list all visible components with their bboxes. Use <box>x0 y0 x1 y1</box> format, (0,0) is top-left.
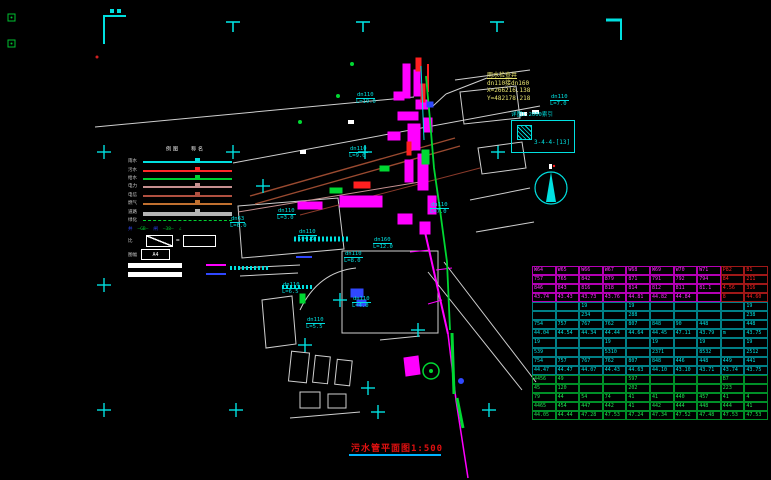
table-cell: 43.10 <box>674 366 698 375</box>
legend-item: 道路 <box>128 207 232 215</box>
table-cell: 44.47 <box>556 366 580 375</box>
pipe-label: dn110L=6.5 <box>282 282 301 295</box>
table-cell: 818 <box>603 284 627 293</box>
table-cell: 848 <box>650 357 674 366</box>
legend-item: 燃气 <box>128 199 232 207</box>
table-cell: 444 <box>674 402 698 411</box>
table-cell: 19 <box>626 302 650 311</box>
table-cell: 43.73 <box>579 293 603 302</box>
well-callout-pipe: dn110接dn160 <box>487 80 530 88</box>
table-cell: 792 <box>674 275 698 284</box>
table-cell: 8532 <box>697 348 721 357</box>
table-cell: 41 <box>721 393 745 402</box>
legend-item: 绿化 <box>128 216 232 224</box>
table-cell: 19 <box>744 302 768 311</box>
table-cell <box>650 311 674 320</box>
table-cell: 807 <box>626 357 650 366</box>
table-cell: W68 <box>626 266 650 275</box>
table-cell: 19 <box>650 338 674 347</box>
table-section: W64W65W66W67W68W69W70W71P82B175776584287… <box>532 266 768 302</box>
stray-red-dot <box>96 56 99 59</box>
table-cell: 288 <box>626 311 650 320</box>
legend-header-name: 名称 <box>190 146 204 152</box>
table-cell: 442 <box>650 402 674 411</box>
table-cell <box>603 311 627 320</box>
table-cell <box>579 338 603 347</box>
well-callout-x: X=266216.138 <box>487 87 530 95</box>
table-cell: 211 <box>744 275 768 284</box>
table-cell: 43.75 <box>744 366 768 375</box>
table-cell: 41 <box>626 402 650 411</box>
table-cell: 202 <box>626 384 650 393</box>
table-cell: 842 <box>579 275 603 284</box>
sewer-pipe-corridor <box>298 64 468 478</box>
table-cell: 539 <box>532 348 556 357</box>
table-cell: 43.79 <box>697 329 721 338</box>
table-cell: 84 <box>721 275 745 284</box>
table-section: 1919191919539531023718532251275475776776… <box>532 338 768 374</box>
cad-viewport: { "colors":{"cyan":"#00e0e0","magenta":"… <box>0 0 771 480</box>
table-cell: 44.63 <box>626 366 650 375</box>
table-cell: 754 <box>532 320 556 329</box>
table-cell <box>626 338 650 347</box>
table-cell: 441 <box>744 357 768 366</box>
table-cell: 47.34 <box>650 411 674 420</box>
table-cell: W65 <box>556 266 580 275</box>
table-cell: 597 <box>626 375 650 384</box>
table-cell: 794 <box>697 275 721 284</box>
table-cell <box>603 302 627 311</box>
cyan-annotations <box>230 66 425 419</box>
frame-corner-top-left <box>103 9 126 44</box>
table-cell <box>721 320 745 329</box>
legend-item: 电力 <box>128 182 232 190</box>
table-cell <box>697 311 721 320</box>
table-cell: 47.28 <box>579 411 603 420</box>
table-cell: 757 <box>556 357 580 366</box>
table-cell <box>556 302 580 311</box>
table-cell: 762 <box>603 357 627 366</box>
table-cell: 446 <box>674 357 698 366</box>
table-cell: 44.47 <box>532 366 556 375</box>
table-cell: 90 <box>674 320 698 329</box>
table-cell: 44.05 <box>532 411 556 420</box>
table-cell: W66 <box>579 266 603 275</box>
table-cell: 44.44 <box>556 411 580 420</box>
table-cell: 757 <box>556 320 580 329</box>
table-cell: 2371 <box>650 348 674 357</box>
pipe-label: dn110L=4.5 <box>298 229 317 242</box>
table-cell <box>721 302 745 311</box>
table-cell: 19 <box>532 338 556 347</box>
table-cell: 47.48 <box>697 411 721 420</box>
detail-index-label: 详图1:2000索引 <box>511 110 577 118</box>
table-cell: B7 <box>721 375 745 384</box>
table-cell: 47.24 <box>626 411 650 420</box>
table-cell: 448 <box>697 402 721 411</box>
table-cell <box>579 348 603 357</box>
table-cell: 43.75 <box>744 329 768 338</box>
legend-extra-symbols: 井—GB—闸—38—∠ <box>128 225 232 233</box>
north-compass-icon <box>535 164 567 204</box>
table-cell: 19 <box>744 338 768 347</box>
table-cell: 449 <box>721 357 745 366</box>
legend-header-symbol: 图例 <box>165 146 179 152</box>
table-cell <box>650 375 674 384</box>
table-cell <box>697 302 721 311</box>
table-cell: 2512 <box>744 348 768 357</box>
legend-item: 给水 <box>128 174 232 182</box>
table-cell <box>674 311 698 320</box>
table-cell <box>721 311 745 320</box>
table-cell: 8 <box>721 293 745 302</box>
table-cell: 238 <box>744 311 768 320</box>
table-cell: 316 <box>744 284 768 293</box>
table-cell: 448 <box>697 357 721 366</box>
table-cell <box>650 302 674 311</box>
table-cell: 43.74 <box>532 293 556 302</box>
pipe-label: dn110L=9.0 <box>349 146 368 159</box>
table-cell: 45 <box>532 384 556 393</box>
table-cell <box>603 384 627 393</box>
table-cell: 767 <box>579 320 603 329</box>
table-cell: 843 <box>556 284 580 293</box>
table-cell: 4 <box>744 393 768 402</box>
table-cell <box>626 348 650 357</box>
table-cell: 44.04 <box>532 329 556 338</box>
table-cell: 120 <box>556 384 580 393</box>
legend-sheet-size: 图幅A4 <box>128 248 232 261</box>
table-cell: 47.11 <box>674 329 698 338</box>
legend-item: 雨水 <box>128 157 232 165</box>
table-cell <box>532 311 556 320</box>
table-cell: 43.74 <box>721 366 745 375</box>
table-cell: 223 <box>721 384 745 393</box>
table-cell <box>674 384 698 393</box>
elevation-table: W64W65W66W67W68W69W70W71P82B175776584287… <box>532 266 768 420</box>
table-cell <box>697 293 721 302</box>
registration-glyphs <box>8 14 15 47</box>
table-cell: 41 <box>626 393 650 402</box>
table-cell: 44.45 <box>650 329 674 338</box>
table-cell <box>744 375 768 384</box>
table-cell <box>532 302 556 311</box>
table-cell: 816 <box>579 284 603 293</box>
table-cell: m <box>721 329 745 338</box>
table-cell <box>721 348 745 357</box>
sheet-title-underline <box>349 454 441 456</box>
pipe-label: dn63L=6.0 <box>230 216 247 229</box>
table-cell: P82 <box>721 266 745 275</box>
table-cell <box>579 384 603 393</box>
table-cell: 44 <box>556 393 580 402</box>
table-cell: 767 <box>579 357 603 366</box>
table-cell: 79 <box>532 393 556 402</box>
table-cell: 807 <box>626 320 650 329</box>
sheet-title: 污水管平面图1:500 <box>351 441 443 454</box>
table-cell <box>579 375 603 384</box>
legend-scale-boxes: 比= <box>128 233 232 248</box>
detail-index-frame: 3-4-4-[13] <box>511 120 575 153</box>
table-cell: W67 <box>603 266 627 275</box>
table-cell: 234 <box>579 311 603 320</box>
table-cell: 812 <box>650 284 674 293</box>
legend-rows: 雨水污水给水电力电信燃气道路绿化井—GB—闸—38—∠比=图幅A4 <box>128 157 232 281</box>
pipe-label: dn110L=5.5 <box>306 317 325 330</box>
frame-corner-top-right <box>606 20 622 40</box>
pipe-label: dn110L=3.0 <box>277 208 296 221</box>
legend-item: 污水 <box>128 165 232 173</box>
table-cell: 440 <box>674 393 698 402</box>
table-cell <box>556 348 580 357</box>
table-section: 1919192342882387547577677628078489044844… <box>532 302 768 338</box>
table-cell: 754 <box>532 357 556 366</box>
table-cell: 43.43 <box>556 293 580 302</box>
table-cell <box>721 338 745 347</box>
table-cell: W70 <box>674 266 698 275</box>
pipe-label: dn110L=7.0 <box>550 94 569 107</box>
table-cell: 43.71 <box>697 366 721 375</box>
table-cell: 447 <box>579 402 603 411</box>
detail-index-code: 3-4-4-[13] <box>534 139 570 146</box>
table-cell: 44.64 <box>626 329 650 338</box>
table-cell <box>744 384 768 393</box>
legend-solid-bars <box>128 263 232 277</box>
table-cell: 848 <box>650 320 674 329</box>
table-cell: W64 <box>532 266 556 275</box>
table-cell: 74 <box>603 393 627 402</box>
table-cell: 44.54 <box>556 329 580 338</box>
table-cell: 879 <box>603 275 627 284</box>
table-cell: 44.10 <box>650 366 674 375</box>
well-coordinate-callout: 雨水检查井 dn110接dn160 X=266216.138 Y=482178.… <box>487 72 530 102</box>
table-cell: 47.53 <box>603 411 627 420</box>
table-cell: 47.53 <box>744 411 768 420</box>
pipe-label: dn160L=12.0 <box>373 237 393 250</box>
table-cell: 4456 <box>532 375 556 384</box>
table-cell: 47.52 <box>674 411 698 420</box>
table-cell <box>674 302 698 311</box>
pipe-label: dn110L=4.0 <box>352 296 371 309</box>
table-cell: 871 <box>626 275 650 284</box>
table-cell: 44.44 <box>603 329 627 338</box>
table-cell: 43.76 <box>603 293 627 302</box>
table-cell: 4465 <box>532 402 556 411</box>
table-cell: 448 <box>697 320 721 329</box>
table-cell <box>697 375 721 384</box>
table-cell: 457 <box>697 393 721 402</box>
table-cell: 791 <box>650 275 674 284</box>
legend-item: 电信 <box>128 191 232 199</box>
table-cell: 762 <box>603 320 627 329</box>
table-cell: 765 <box>556 275 580 284</box>
table-cell: 44.81 <box>626 293 650 302</box>
table-cell <box>650 384 674 393</box>
table-cell: 54 <box>579 393 603 402</box>
table-cell: 448 <box>744 320 768 329</box>
table-cell: W71 <box>697 266 721 275</box>
pipe-label: dn110L=7.0 <box>430 202 449 215</box>
table-cell: 44.60 <box>744 293 768 302</box>
table-cell: B1 <box>744 266 768 275</box>
pipe-label: dn110L=19.0 <box>356 92 376 105</box>
table-cell: 442 <box>603 402 627 411</box>
table-cell: 41 <box>744 402 768 411</box>
table-cell <box>556 311 580 320</box>
table-cell: 814 <box>626 284 650 293</box>
table-cell: 44.84 <box>674 293 698 302</box>
table-cell: 44.82 <box>650 293 674 302</box>
table-cell: 4.56 <box>721 284 745 293</box>
pipe-label: dn110L=8.0 <box>344 251 363 264</box>
table-cell: 81.1 <box>697 284 721 293</box>
table-cell: 19 <box>579 302 603 311</box>
hatch-swatch-icon <box>517 125 532 140</box>
table-cell <box>603 375 627 384</box>
table-cell: 44.07 <box>579 366 603 375</box>
table-cell: 5310 <box>603 348 627 357</box>
frame-ticks-top <box>226 22 504 32</box>
table-cell <box>674 348 698 357</box>
table-cell: 44.43 <box>603 366 627 375</box>
table-cell <box>697 384 721 393</box>
detail-index-box: 详图1:2000索引 3-4-4-[13] <box>511 110 577 153</box>
table-cell: 47.53 <box>721 411 745 420</box>
table-cell: W69 <box>650 266 674 275</box>
table-cell: 44.34 <box>579 329 603 338</box>
table-cell: 846 <box>532 284 556 293</box>
table-cell: 19 <box>697 338 721 347</box>
table-cell: 757 <box>532 275 556 284</box>
table-cell: 49 <box>556 375 580 384</box>
table-cell <box>674 338 698 347</box>
table-cell: 444 <box>721 402 745 411</box>
table-cell <box>674 375 698 384</box>
table-cell: 41 <box>650 393 674 402</box>
table-cell <box>556 338 580 347</box>
well-callout-title: 雨水检查井 <box>487 72 530 80</box>
table-cell: 454 <box>556 402 580 411</box>
table-section: 445649597B745120202223794454744141440457… <box>532 375 768 420</box>
table-cell: 811 <box>674 284 698 293</box>
well-callout-y: Y=482178.218 <box>487 95 530 103</box>
table-cell: 19 <box>603 338 627 347</box>
